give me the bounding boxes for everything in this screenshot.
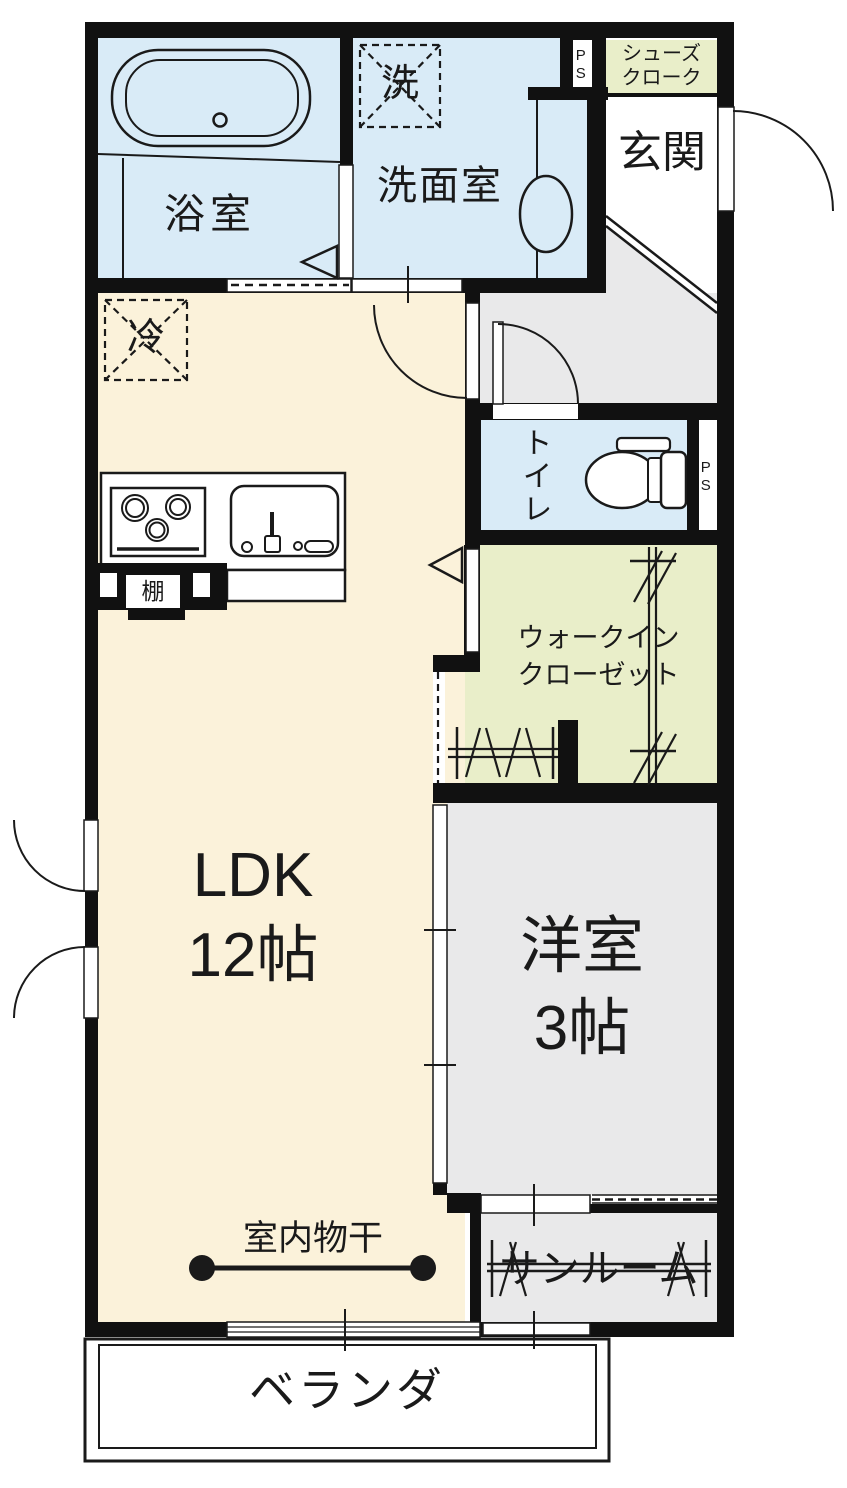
ldk-wic-dashed-boundary (433, 672, 445, 783)
ldk-label-line1: LDK (133, 836, 373, 916)
room-ldk (98, 293, 465, 1322)
ps-top-label: PS (572, 43, 589, 87)
entrance-door (718, 107, 833, 211)
walk-in-closet-label: ウォークイン クローゼット (480, 620, 717, 694)
shelf-label: 棚 (126, 578, 180, 604)
sunroom-label: サンルーム (481, 1246, 717, 1292)
indoor-drying-label: 室内物干 (193, 1219, 433, 1259)
ldk-side-window-lower (14, 947, 98, 1018)
floor-plan: 浴室 洗面室 玄関 シューズ クローク トイレ PS PS ウォークイン クロー… (0, 0, 847, 1488)
washing-machine-label: 洗 (360, 63, 440, 107)
walk-in-closet-label-line2: クローゼット (480, 657, 717, 694)
walk-in-closet-label-line1: ウォークイン (480, 620, 717, 657)
bathroom-label: 浴室 (150, 191, 270, 238)
ldk-label-line2: 12帖 (133, 916, 373, 996)
entrance-label: 玄関 (608, 128, 716, 179)
refrigerator-label: 冷 (105, 317, 187, 361)
washroom-label: 洗面室 (360, 163, 520, 209)
ldk-side-window-upper (14, 820, 98, 891)
western-room-label-line1: 洋室 (462, 906, 702, 988)
ldk-label: LDK 12帖 (133, 836, 373, 996)
ps-toilet-label: PS (697, 452, 714, 502)
shoe-closet-label: シューズ クローク (606, 42, 717, 90)
toilet-label: トイレ (516, 424, 551, 529)
room-hall (480, 293, 717, 403)
shoe-closet-label-line1: シューズ (606, 42, 717, 66)
veranda-label: ベランダ (85, 1364, 609, 1417)
western-room-label-line2: 3帖 (462, 988, 702, 1070)
floor-plan-drawing (0, 0, 847, 1488)
shoe-closet-label-line2: クローク (606, 66, 717, 90)
western-room-label: 洋室 3帖 (462, 906, 702, 1070)
